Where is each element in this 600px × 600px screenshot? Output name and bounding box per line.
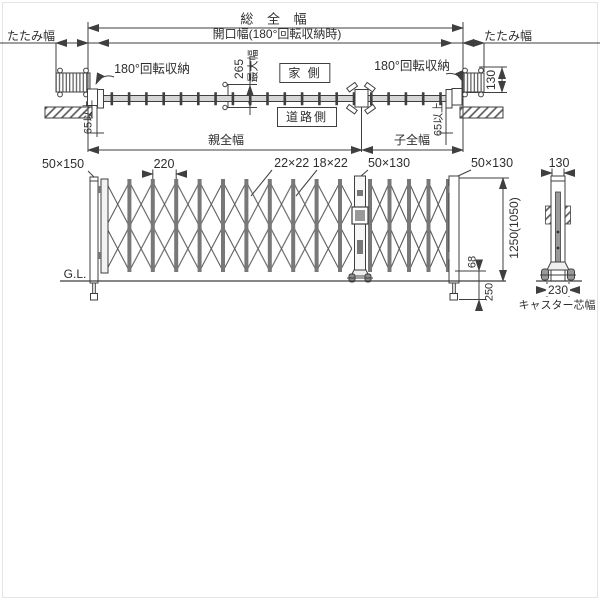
fold-width-label-left: たたみ幅 [7,30,55,42]
caster-height-dimension [455,264,486,306]
lattice-sizes-label: 22×22 18×22 [274,157,348,170]
opening-width-label: 開口幅(180°回転収納時) [213,28,342,40]
elevation-view [60,170,509,307]
pitch-value: 220 [154,158,175,171]
drawing-linework [0,0,600,600]
main-post-size-label: 50×150 [42,158,84,171]
parent-lattice [101,179,352,273]
caster-core-width-label: キャスター芯幅 [519,301,596,312]
wall-hatch-right [460,107,503,118]
ground-line-label: G.L. [64,268,87,280]
rotation-label-left: 180°回転収納 [114,63,190,76]
caster-core-width-value: 230 [546,284,570,296]
height-value: 1250(1050) [508,197,520,258]
total-width-label: 総 全 幅 [240,13,311,26]
rotation-arrow-right [446,73,463,82]
house-side-label: 家 側 [279,63,330,83]
center-post-size-label: 50×130 [368,157,410,170]
gate-top-bar [98,90,453,109]
gate-technical-drawing: 総 全 幅 開口幅(180°回転収納時) たたみ幅 たたみ幅 180°回転収納 … [0,0,600,600]
caster-height-value: 68 [468,256,479,268]
side-view [536,169,582,298]
max-width-value: 265 [233,59,245,79]
drop-depth-value: 250 [485,283,496,301]
parent-width-label: 親全幅 [208,134,244,146]
side-post-width-value: 130 [549,157,570,170]
child-width-label: 子全幅 [394,134,430,146]
folded-gate-right [452,68,484,105]
road-side-label: 道路側 [277,107,337,127]
pitch-dimension [145,170,184,180]
child-lattice [368,182,450,271]
clearance-label-left: 65以上 [84,100,95,134]
fold-width-label-right: たたみ幅 [484,30,532,42]
max-width-label: 最大幅 [249,50,260,83]
rotation-arrow-left [96,76,114,84]
clearance-label-right: 65以上 [434,102,445,136]
unit-depth-value: 130 [485,70,497,90]
rotation-label-right: 180°回転収納 [374,60,450,73]
end-post-size-label: 50×130 [471,157,513,170]
